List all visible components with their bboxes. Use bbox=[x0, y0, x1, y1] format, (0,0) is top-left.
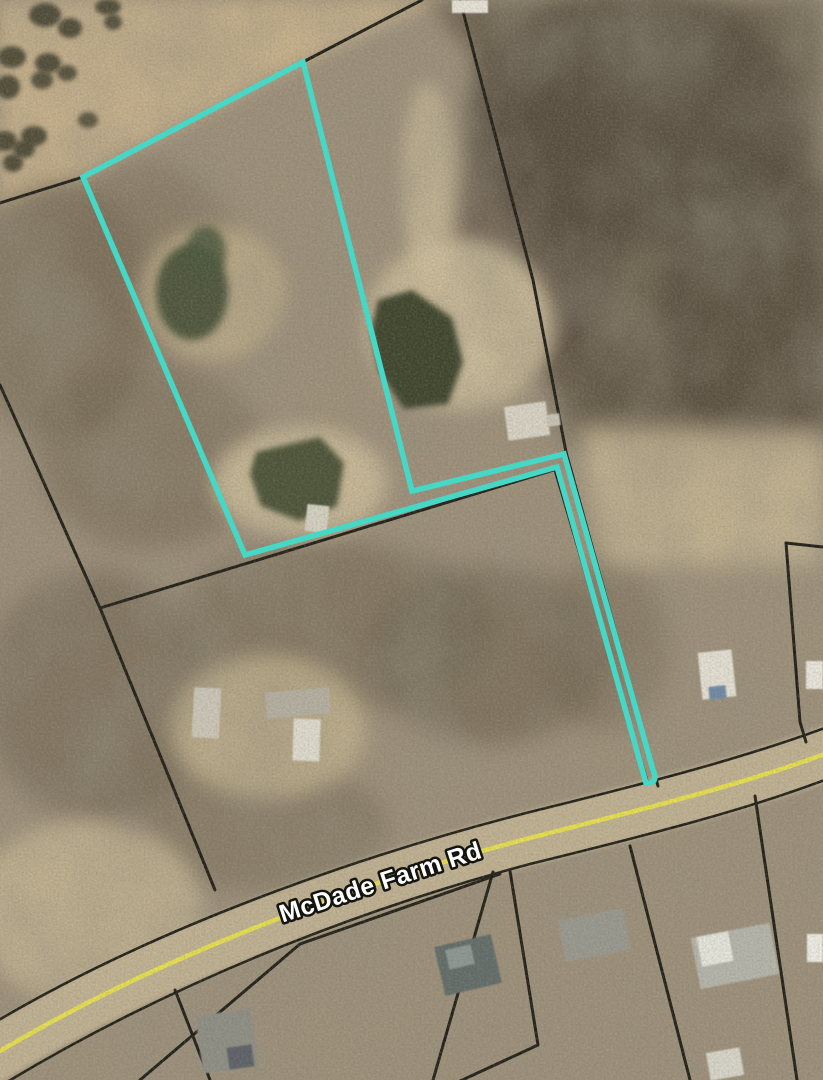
parcel-map-image: McDade Farm Rd bbox=[0, 0, 823, 1080]
terrain-grain-light bbox=[0, 0, 823, 1080]
parcel-map-svg: McDade Farm Rd bbox=[0, 0, 823, 1080]
map-shapes bbox=[0, 0, 823, 1080]
